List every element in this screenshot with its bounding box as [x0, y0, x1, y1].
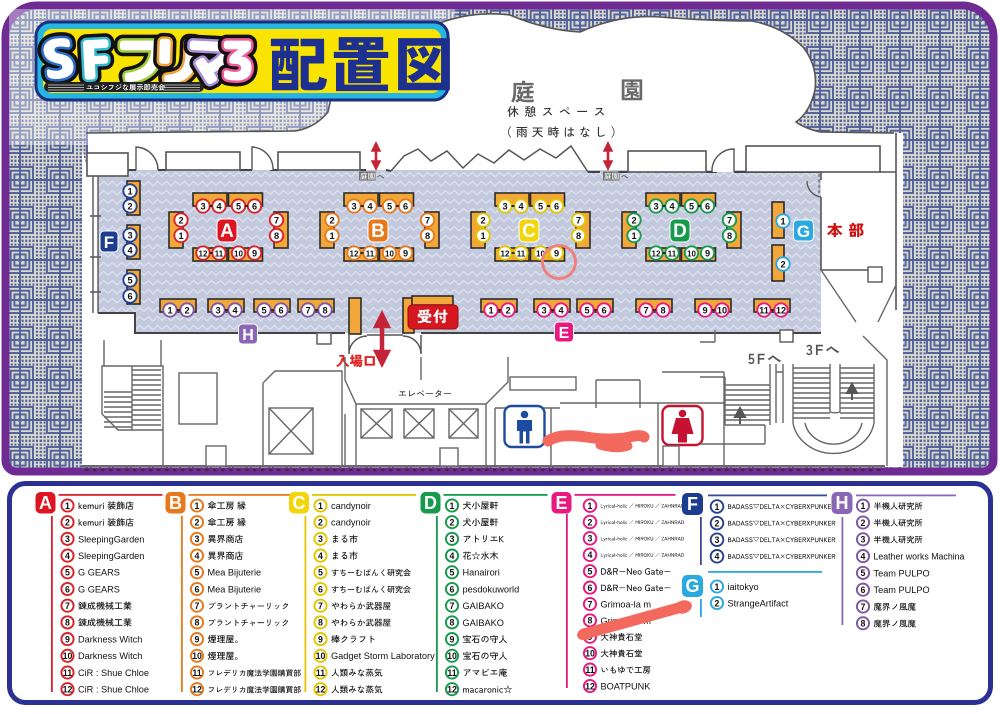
svg-text:9: 9 [195, 634, 200, 644]
svg-text:11: 11 [759, 305, 769, 315]
svg-text:SleepingGarden: SleepingGarden [78, 551, 144, 561]
svg-text:5: 5 [236, 201, 241, 211]
svg-text:12: 12 [652, 249, 661, 258]
svg-text:B: B [169, 493, 182, 513]
svg-text:Gadget Storm Laboratory: Gadget Storm Laboratory [331, 651, 435, 661]
svg-text:12: 12 [585, 681, 595, 691]
svg-text:8: 8 [274, 231, 279, 241]
svg-text:A: A [39, 493, 52, 513]
svg-text:12: 12 [350, 249, 359, 258]
svg-text:2: 2 [715, 598, 720, 608]
svg-text:4: 4 [588, 550, 593, 560]
svg-text:4: 4 [518, 201, 524, 211]
svg-text:6: 6 [861, 585, 866, 595]
svg-text:7: 7 [425, 215, 430, 225]
svg-text:7: 7 [318, 601, 323, 611]
svg-text:3: 3 [65, 534, 70, 544]
svg-text:candynoir: candynoir [331, 518, 371, 528]
svg-text:H: H [242, 327, 254, 344]
svg-text:9: 9 [318, 634, 323, 644]
svg-text:2: 2 [184, 305, 189, 315]
svg-text:11: 11 [668, 249, 677, 258]
svg-text:G: G [797, 222, 810, 241]
svg-text:10: 10 [687, 249, 696, 258]
svg-text:iaitokyo: iaitokyo [728, 582, 759, 592]
svg-text:G GEARS: G GEARS [78, 568, 120, 578]
svg-text:11: 11 [215, 249, 224, 258]
svg-text:9: 9 [65, 634, 70, 644]
svg-text:10: 10 [63, 651, 73, 661]
svg-text:3: 3 [861, 535, 866, 545]
svg-text:4: 4 [216, 201, 222, 211]
svg-text:7: 7 [65, 601, 70, 611]
svg-text:1: 1 [329, 231, 334, 241]
svg-text:Mea Bijuterie: Mea Bijuterie [208, 568, 262, 578]
svg-text:7: 7 [861, 602, 866, 612]
svg-text:11: 11 [63, 668, 72, 678]
svg-text:6: 6 [588, 583, 593, 593]
svg-text:4: 4 [195, 551, 200, 561]
svg-text:2: 2 [631, 215, 636, 225]
svg-text:D: D [424, 493, 437, 513]
svg-text:2: 2 [178, 215, 183, 225]
svg-text:7: 7 [727, 215, 732, 225]
svg-text:1: 1 [715, 582, 720, 592]
svg-text:6: 6 [450, 584, 455, 594]
svg-text:8: 8 [425, 231, 430, 241]
svg-text:4: 4 [127, 245, 133, 255]
svg-text:4: 4 [65, 551, 70, 561]
svg-text:3: 3 [215, 305, 220, 315]
svg-text:8: 8 [318, 618, 323, 628]
svg-text:E: E [559, 325, 570, 342]
svg-text:3: 3 [351, 201, 356, 211]
svg-text:9: 9 [702, 305, 707, 315]
svg-text:4: 4 [318, 551, 323, 561]
svg-text:Team PULPO: Team PULPO [874, 585, 930, 595]
svg-text:7: 7 [305, 305, 310, 315]
svg-text:1: 1 [195, 501, 200, 511]
svg-text:12: 12 [447, 685, 457, 695]
svg-text:G: G [685, 576, 699, 596]
svg-text:1: 1 [178, 231, 183, 241]
svg-text:9: 9 [252, 248, 257, 258]
svg-text:12: 12 [316, 685, 326, 695]
svg-text:1: 1 [780, 216, 785, 226]
svg-text:2: 2 [450, 518, 455, 528]
svg-text:11: 11 [192, 668, 201, 678]
svg-text:3: 3 [127, 230, 132, 240]
svg-text:7: 7 [576, 215, 581, 225]
svg-text:8: 8 [588, 616, 593, 626]
svg-text:Team PULPO: Team PULPO [874, 568, 930, 578]
svg-text:1: 1 [861, 501, 866, 511]
svg-text:6: 6 [318, 584, 323, 594]
svg-text:5: 5 [65, 568, 70, 578]
svg-text:2: 2 [329, 215, 334, 225]
svg-text:D: D [673, 221, 687, 242]
svg-text:6: 6 [554, 201, 559, 211]
svg-text:6: 6 [403, 201, 408, 211]
svg-text:3: 3 [653, 201, 658, 211]
svg-text:5: 5 [861, 568, 866, 578]
svg-text:6: 6 [252, 201, 257, 211]
svg-text:5: 5 [538, 201, 543, 211]
svg-text:4: 4 [367, 201, 373, 211]
svg-text:C: C [522, 221, 536, 242]
svg-text:9: 9 [403, 248, 408, 258]
svg-text:SleepingGarden: SleepingGarden [78, 534, 144, 544]
svg-text:3: 3 [502, 201, 507, 211]
svg-text:5: 5 [195, 568, 200, 578]
svg-text:8: 8 [450, 618, 455, 628]
svg-text:2: 2 [588, 517, 593, 527]
svg-text:2: 2 [861, 518, 866, 528]
svg-text:2: 2 [480, 215, 485, 225]
svg-text:4: 4 [715, 552, 720, 562]
svg-text:6: 6 [705, 201, 710, 211]
svg-text:7: 7 [274, 215, 279, 225]
svg-text:10: 10 [234, 249, 243, 258]
svg-text:5: 5 [387, 201, 392, 211]
svg-text:4: 4 [450, 551, 455, 561]
svg-text:6: 6 [65, 584, 70, 594]
svg-text:B: B [371, 221, 385, 242]
svg-text:1: 1 [631, 231, 636, 241]
svg-text:8: 8 [195, 618, 200, 628]
svg-text:12: 12 [199, 249, 208, 258]
svg-text:G GEARS: G GEARS [78, 584, 120, 594]
svg-text:2: 2 [127, 201, 132, 211]
svg-text:4: 4 [861, 551, 866, 561]
svg-text:6: 6 [278, 305, 283, 315]
svg-text:7: 7 [450, 601, 455, 611]
svg-text:12: 12 [63, 685, 73, 695]
svg-text:4: 4 [558, 305, 564, 315]
svg-text:CiR : Shue Chloe: CiR : Shue Chloe [78, 668, 149, 678]
svg-text:1: 1 [715, 502, 720, 512]
svg-text:C: C [293, 493, 306, 513]
svg-text:8: 8 [65, 618, 70, 628]
svg-text:3: 3 [195, 534, 200, 544]
svg-text:1: 1 [480, 231, 485, 241]
svg-text:F: F [687, 494, 698, 514]
svg-text:1: 1 [450, 501, 455, 511]
svg-text:5: 5 [318, 568, 323, 578]
svg-text:1: 1 [588, 501, 593, 511]
svg-text:BOATPUNK: BOATPUNK [601, 681, 652, 691]
svg-text:5: 5 [261, 305, 266, 315]
svg-text:8: 8 [322, 305, 327, 315]
svg-text:Mea Bijuterie: Mea Bijuterie [208, 584, 262, 594]
svg-text:1: 1 [318, 501, 323, 511]
svg-text:3: 3 [715, 535, 720, 545]
svg-text:1: 1 [65, 501, 70, 511]
svg-text:4: 4 [232, 305, 238, 315]
svg-text:CiR : Shue Chloe: CiR : Shue Chloe [78, 685, 149, 695]
svg-text:2: 2 [780, 259, 785, 269]
svg-text:3: 3 [450, 534, 455, 544]
svg-text:GAIBAKO: GAIBAKO [463, 601, 504, 611]
svg-text:5: 5 [127, 275, 132, 285]
svg-text:1: 1 [167, 305, 172, 315]
svg-text:F: F [104, 233, 114, 252]
svg-text:10: 10 [717, 305, 727, 315]
svg-text:5: 5 [450, 568, 455, 578]
svg-text:11: 11 [447, 668, 456, 678]
svg-text:2: 2 [715, 518, 720, 528]
svg-text:2: 2 [318, 518, 323, 528]
svg-text:4: 4 [669, 201, 675, 211]
svg-text:3: 3 [318, 534, 323, 544]
svg-text:8: 8 [576, 231, 581, 241]
svg-text:2: 2 [65, 518, 70, 528]
svg-text:12: 12 [192, 685, 202, 695]
svg-text:10: 10 [316, 651, 326, 661]
svg-text:5: 5 [689, 201, 694, 211]
svg-text:9: 9 [450, 634, 455, 644]
svg-text:E: E [555, 493, 567, 513]
svg-text:Darkness Witch: Darkness Witch [78, 635, 142, 645]
svg-text:5: 5 [588, 567, 593, 577]
svg-text:9: 9 [705, 248, 710, 258]
svg-text:11: 11 [316, 668, 325, 678]
svg-text:6: 6 [601, 305, 606, 315]
svg-text:6: 6 [195, 584, 200, 594]
svg-text:7: 7 [643, 305, 648, 315]
svg-text:GAIBAKO: GAIBAKO [463, 618, 504, 628]
svg-text:12: 12 [776, 305, 786, 315]
svg-text:H: H [836, 493, 849, 513]
svg-text:8: 8 [660, 305, 665, 315]
svg-text:3: 3 [588, 534, 593, 544]
svg-text:5: 5 [584, 305, 589, 315]
svg-text:Leather works Machina: Leather works Machina [874, 552, 965, 562]
svg-text:2: 2 [195, 518, 200, 528]
svg-text:Darkness Witch: Darkness Witch [78, 651, 142, 661]
svg-text:A: A [220, 221, 234, 242]
svg-text:8: 8 [861, 619, 866, 629]
svg-text:10: 10 [585, 649, 595, 659]
svg-text:2: 2 [505, 305, 510, 315]
svg-text:candynoir: candynoir [331, 501, 371, 511]
svg-text:12: 12 [501, 249, 510, 258]
svg-text:9: 9 [554, 248, 559, 258]
svg-text:1: 1 [488, 305, 493, 315]
svg-text:7: 7 [588, 599, 593, 609]
svg-text:11: 11 [517, 249, 526, 258]
svg-text:10: 10 [192, 651, 202, 661]
svg-text:Hanairori: Hanairori [463, 568, 500, 578]
svg-text:pesdokuworld: pesdokuworld [463, 584, 520, 594]
svg-text:11: 11 [366, 249, 375, 258]
svg-text:6: 6 [127, 291, 132, 301]
svg-text:8: 8 [727, 231, 732, 241]
svg-text:7: 7 [195, 601, 200, 611]
svg-text:10: 10 [385, 249, 394, 258]
svg-text:3: 3 [541, 305, 546, 315]
svg-text:Grimoa-la m: Grimoa-la m [601, 599, 652, 609]
svg-text:11: 11 [585, 665, 594, 675]
svg-text:10: 10 [447, 651, 457, 661]
svg-text:3: 3 [200, 201, 205, 211]
svg-text:1: 1 [127, 186, 132, 196]
svg-text:StrangeArtifact: StrangeArtifact [728, 598, 789, 608]
